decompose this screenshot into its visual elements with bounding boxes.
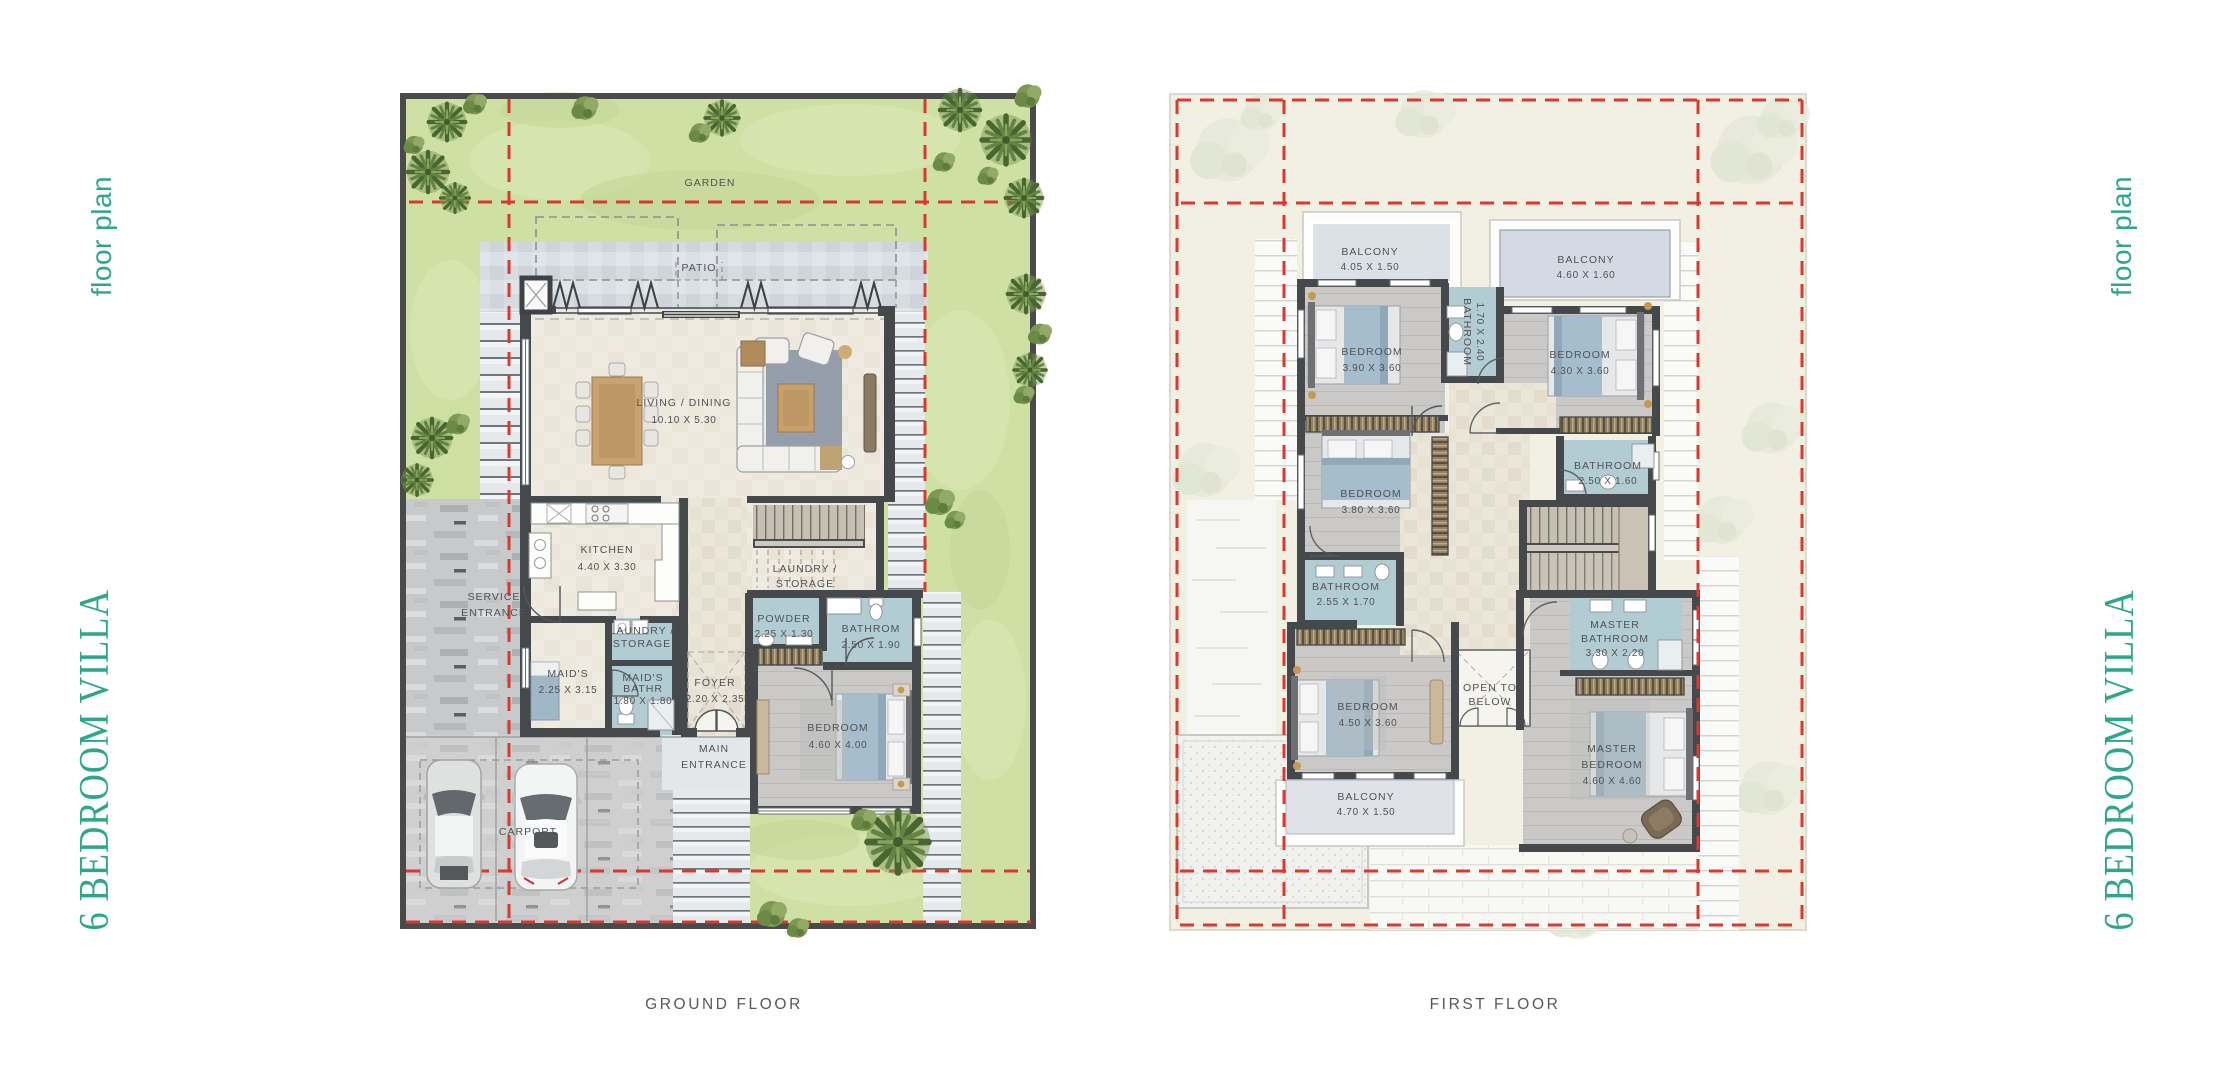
svg-text:OPEN TO: OPEN TO <box>1463 682 1517 694</box>
svg-text:4.50 X 3.60: 4.50 X 3.60 <box>1339 718 1398 729</box>
svg-text:BATHROOM: BATHROOM <box>1574 460 1642 472</box>
svg-text:BATHROOM: BATHROOM <box>1581 633 1649 645</box>
svg-text:3.30 X 2.20: 3.30 X 2.20 <box>1586 648 1645 659</box>
svg-text:4.40 X 3.30: 4.40 X 3.30 <box>578 562 637 573</box>
svg-text:4.70 X 1.50: 4.70 X 1.50 <box>1337 807 1396 818</box>
svg-text:1.80 X 1.80: 1.80 X 1.80 <box>614 696 673 707</box>
svg-text:floor plan: floor plan <box>2106 176 2137 296</box>
svg-text:FIRST FLOOR: FIRST FLOOR <box>1430 996 1561 1013</box>
svg-text:CARPORT: CARPORT <box>499 826 557 838</box>
svg-text:4.60 X 4.60: 4.60 X 4.60 <box>1583 776 1642 787</box>
svg-text:2.50 X 1.90: 2.50 X 1.90 <box>842 640 901 651</box>
svg-text:BALCONY: BALCONY <box>1341 246 1398 258</box>
svg-text:BEDROOM: BEDROOM <box>1340 488 1401 500</box>
svg-text:FOYER: FOYER <box>694 677 735 689</box>
svg-text:LAUNDRY /: LAUNDRY / <box>610 625 675 637</box>
svg-text:STORAGE: STORAGE <box>613 638 671 650</box>
svg-text:3.90 X 3.60: 3.90 X 3.60 <box>1343 363 1402 374</box>
svg-text:BEDROOM: BEDROOM <box>807 722 868 734</box>
svg-text:BALCONY: BALCONY <box>1557 254 1614 266</box>
svg-text:1.70 X 2.40: 1.70 X 2.40 <box>1474 303 1485 362</box>
svg-text:POWDER: POWDER <box>757 613 810 625</box>
svg-text:STORAGE: STORAGE <box>776 578 834 590</box>
svg-text:2.20 X 2.35: 2.20 X 2.35 <box>686 694 745 705</box>
svg-text:10.10 X 5.30: 10.10 X 5.30 <box>651 415 716 426</box>
svg-text:ENTRANCE: ENTRANCE <box>681 759 747 771</box>
svg-text:2.25 X 3.15: 2.25 X 3.15 <box>539 685 598 696</box>
svg-text:ENTRANCE: ENTRANCE <box>461 607 527 619</box>
svg-text:6 BEDROOM VILLA: 6 BEDROOM VILLA <box>2096 589 2143 930</box>
svg-text:2.50 X 1.60: 2.50 X 1.60 <box>1579 476 1638 487</box>
svg-text:3.80 X 3.60: 3.80 X 3.60 <box>1342 505 1401 516</box>
svg-text:BATHR: BATHR <box>623 683 663 695</box>
svg-text:floor plan: floor plan <box>86 176 117 296</box>
svg-text:LIVING / DINING: LIVING / DINING <box>637 397 732 409</box>
svg-text:4.30 X 3.60: 4.30 X 3.60 <box>1551 366 1610 377</box>
svg-text:KITCHEN: KITCHEN <box>580 544 633 556</box>
svg-text:GROUND FLOOR: GROUND FLOOR <box>645 996 803 1013</box>
svg-text:4.05 X 1.50: 4.05 X 1.50 <box>1341 262 1400 273</box>
svg-text:SERVICE: SERVICE <box>468 591 521 603</box>
svg-text:2.25 X 1.30: 2.25 X 1.30 <box>755 629 814 640</box>
svg-text:GARDEN: GARDEN <box>685 177 736 189</box>
svg-text:BEDROOM: BEDROOM <box>1341 346 1402 358</box>
svg-text:BEDROOM: BEDROOM <box>1549 349 1610 361</box>
svg-text:MAID'S: MAID'S <box>547 668 588 680</box>
svg-text:PATIO: PATIO <box>682 262 717 274</box>
svg-text:BALCONY: BALCONY <box>1337 791 1394 803</box>
svg-text:4.60 X 1.60: 4.60 X 1.60 <box>1557 270 1616 281</box>
svg-text:MASTER: MASTER <box>1590 619 1640 631</box>
svg-text:4.60 X 4.00: 4.60 X 4.00 <box>809 740 868 751</box>
svg-text:2.55 X 1.70: 2.55 X 1.70 <box>1317 597 1376 608</box>
svg-text:BATHROOM: BATHROOM <box>1312 581 1380 593</box>
svg-text:BEDROOM: BEDROOM <box>1337 701 1398 713</box>
svg-text:BATHROM: BATHROM <box>842 623 901 635</box>
svg-text:MAIN: MAIN <box>699 743 729 755</box>
svg-text:LAUNDRY /: LAUNDRY / <box>773 563 838 575</box>
svg-text:BATHROOM: BATHROOM <box>1461 298 1473 366</box>
svg-text:BELOW: BELOW <box>1469 696 1512 708</box>
svg-text:MASTER: MASTER <box>1587 743 1637 755</box>
svg-text:6 BEDROOM VILLA: 6 BEDROOM VILLA <box>71 589 118 930</box>
svg-text:BEDROOM: BEDROOM <box>1581 759 1642 771</box>
